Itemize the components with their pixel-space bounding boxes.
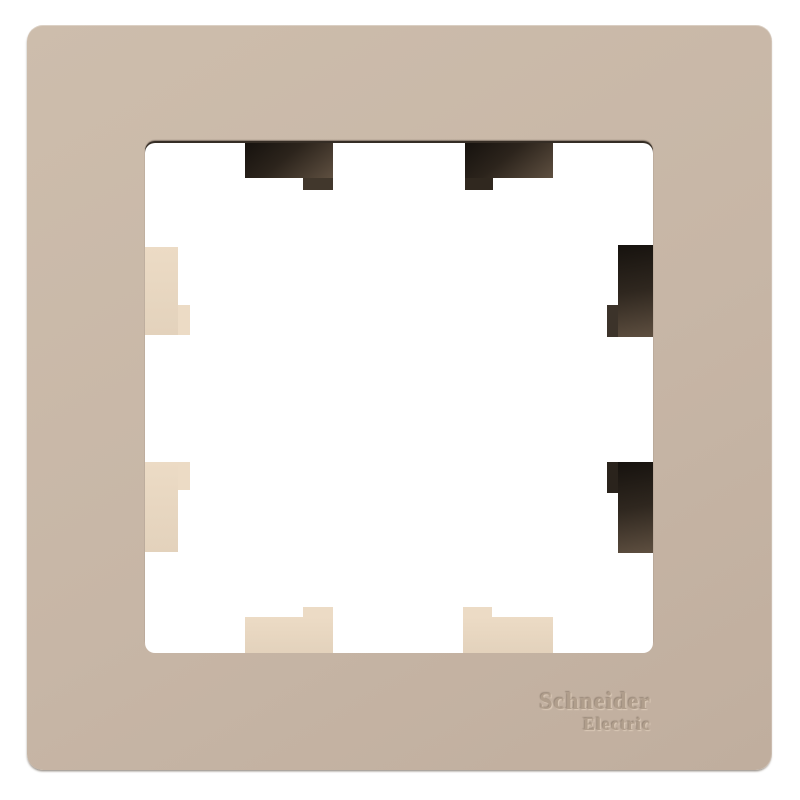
wall-plate-frame: Schneider Electric <box>27 25 772 770</box>
schneider-electric-logo: Schneider Electric <box>539 690 651 733</box>
mounting-clip-top-left <box>245 143 333 178</box>
logo-brand-line: Electric <box>539 715 651 733</box>
mounting-clip-left-top <box>145 247 178 335</box>
clip-step <box>303 607 333 617</box>
mounting-clip-right-top <box>618 245 653 337</box>
mounting-clip-bottom-right <box>463 617 553 653</box>
frame-opening <box>145 143 653 653</box>
clip-step <box>303 178 333 190</box>
logo-brand-line: Schneider <box>539 690 651 714</box>
clip-step <box>178 305 190 335</box>
product-photo: Schneider Electric <box>0 0 800 800</box>
mounting-clip-bottom-left <box>245 617 333 653</box>
mounting-clip-right-bottom <box>618 462 653 553</box>
clip-step <box>465 178 493 190</box>
mounting-clip-left-bottom <box>145 462 178 552</box>
clip-step <box>607 305 618 337</box>
clip-step <box>607 462 618 493</box>
clip-step <box>463 607 492 617</box>
clip-step <box>178 462 190 490</box>
mounting-clip-top-right <box>465 143 553 178</box>
